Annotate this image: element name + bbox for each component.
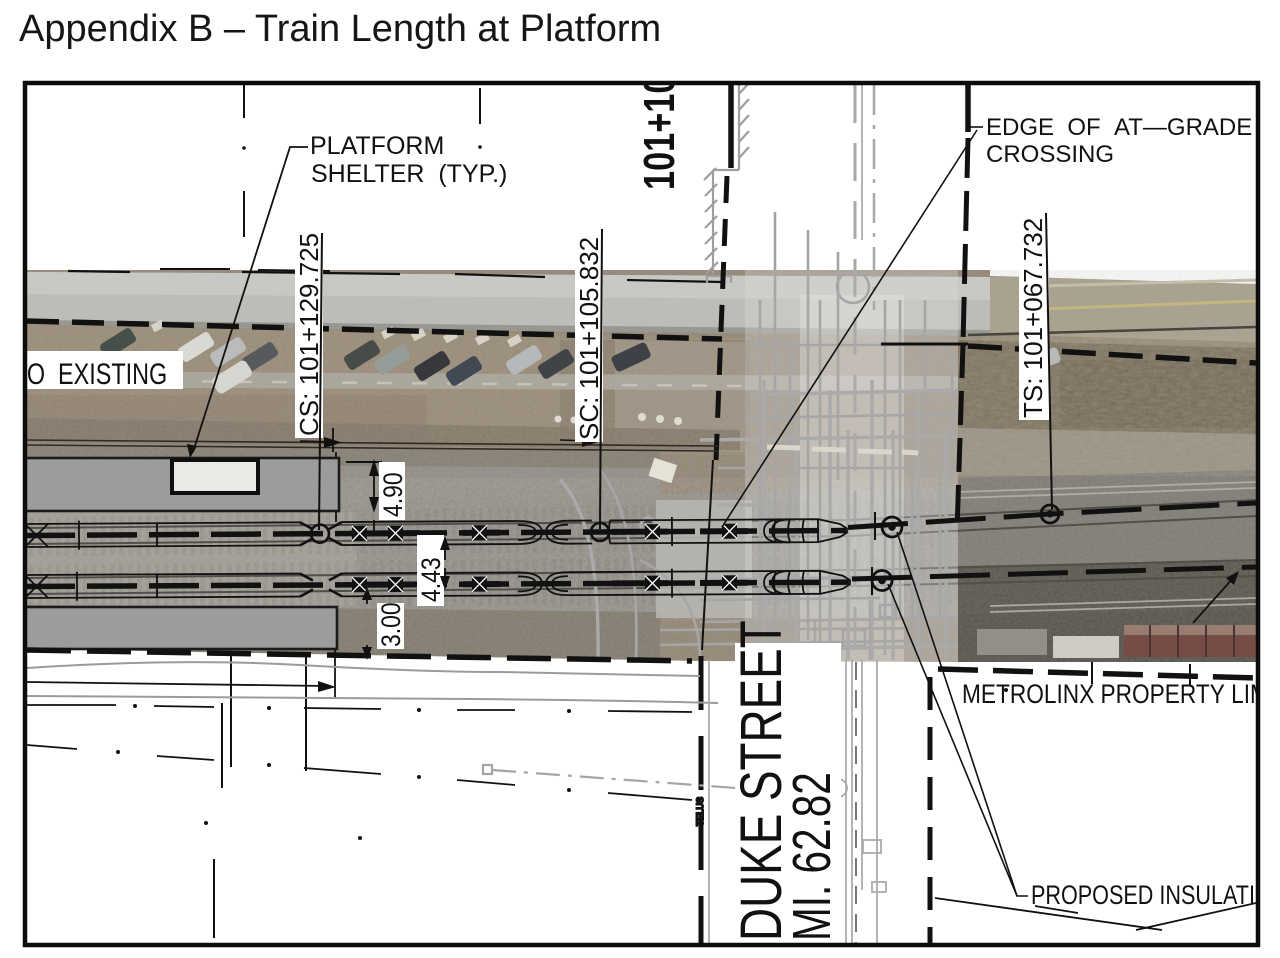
svg-text:CROSSING: CROSSING	[986, 141, 1114, 168]
svg-text:EDGE OF AT—GRADE: EDGE OF AT—GRADE	[986, 114, 1252, 141]
svg-text:TO EXISTING: TO EXISTING	[13, 357, 167, 390]
svg-text:101+10: 101+10	[635, 75, 684, 190]
svg-text:Appendix B – Train Length at P: Appendix B – Train Length at Platform	[19, 8, 661, 50]
svg-text:TS: 101+067.732: TS: 101+067.732	[1018, 218, 1048, 418]
svg-text:PLATFORM: PLATFORM	[310, 132, 444, 160]
svg-text:4.43: 4.43	[416, 557, 446, 602]
svg-text:MI. 62.82: MI. 62.82	[782, 772, 842, 941]
svg-text:PROPOSED INSULATION: PROPOSED INSULATION	[1031, 881, 1280, 911]
svg-text:CS: 101+129.725: CS: 101+129.725	[294, 233, 324, 436]
svg-text:TELUS: TELUS	[695, 797, 705, 826]
svg-text:4.90: 4.90	[378, 472, 408, 517]
svg-text:3.00: 3.00	[376, 602, 406, 647]
svg-text:METROLINX PROPERTY LIMIT: METROLINX PROPERTY LIMIT	[962, 679, 1280, 709]
svg-text:SHELTER (TYP.): SHELTER (TYP.)	[311, 160, 507, 188]
svg-text:SC: 101+105.832: SC: 101+105.832	[574, 237, 604, 440]
